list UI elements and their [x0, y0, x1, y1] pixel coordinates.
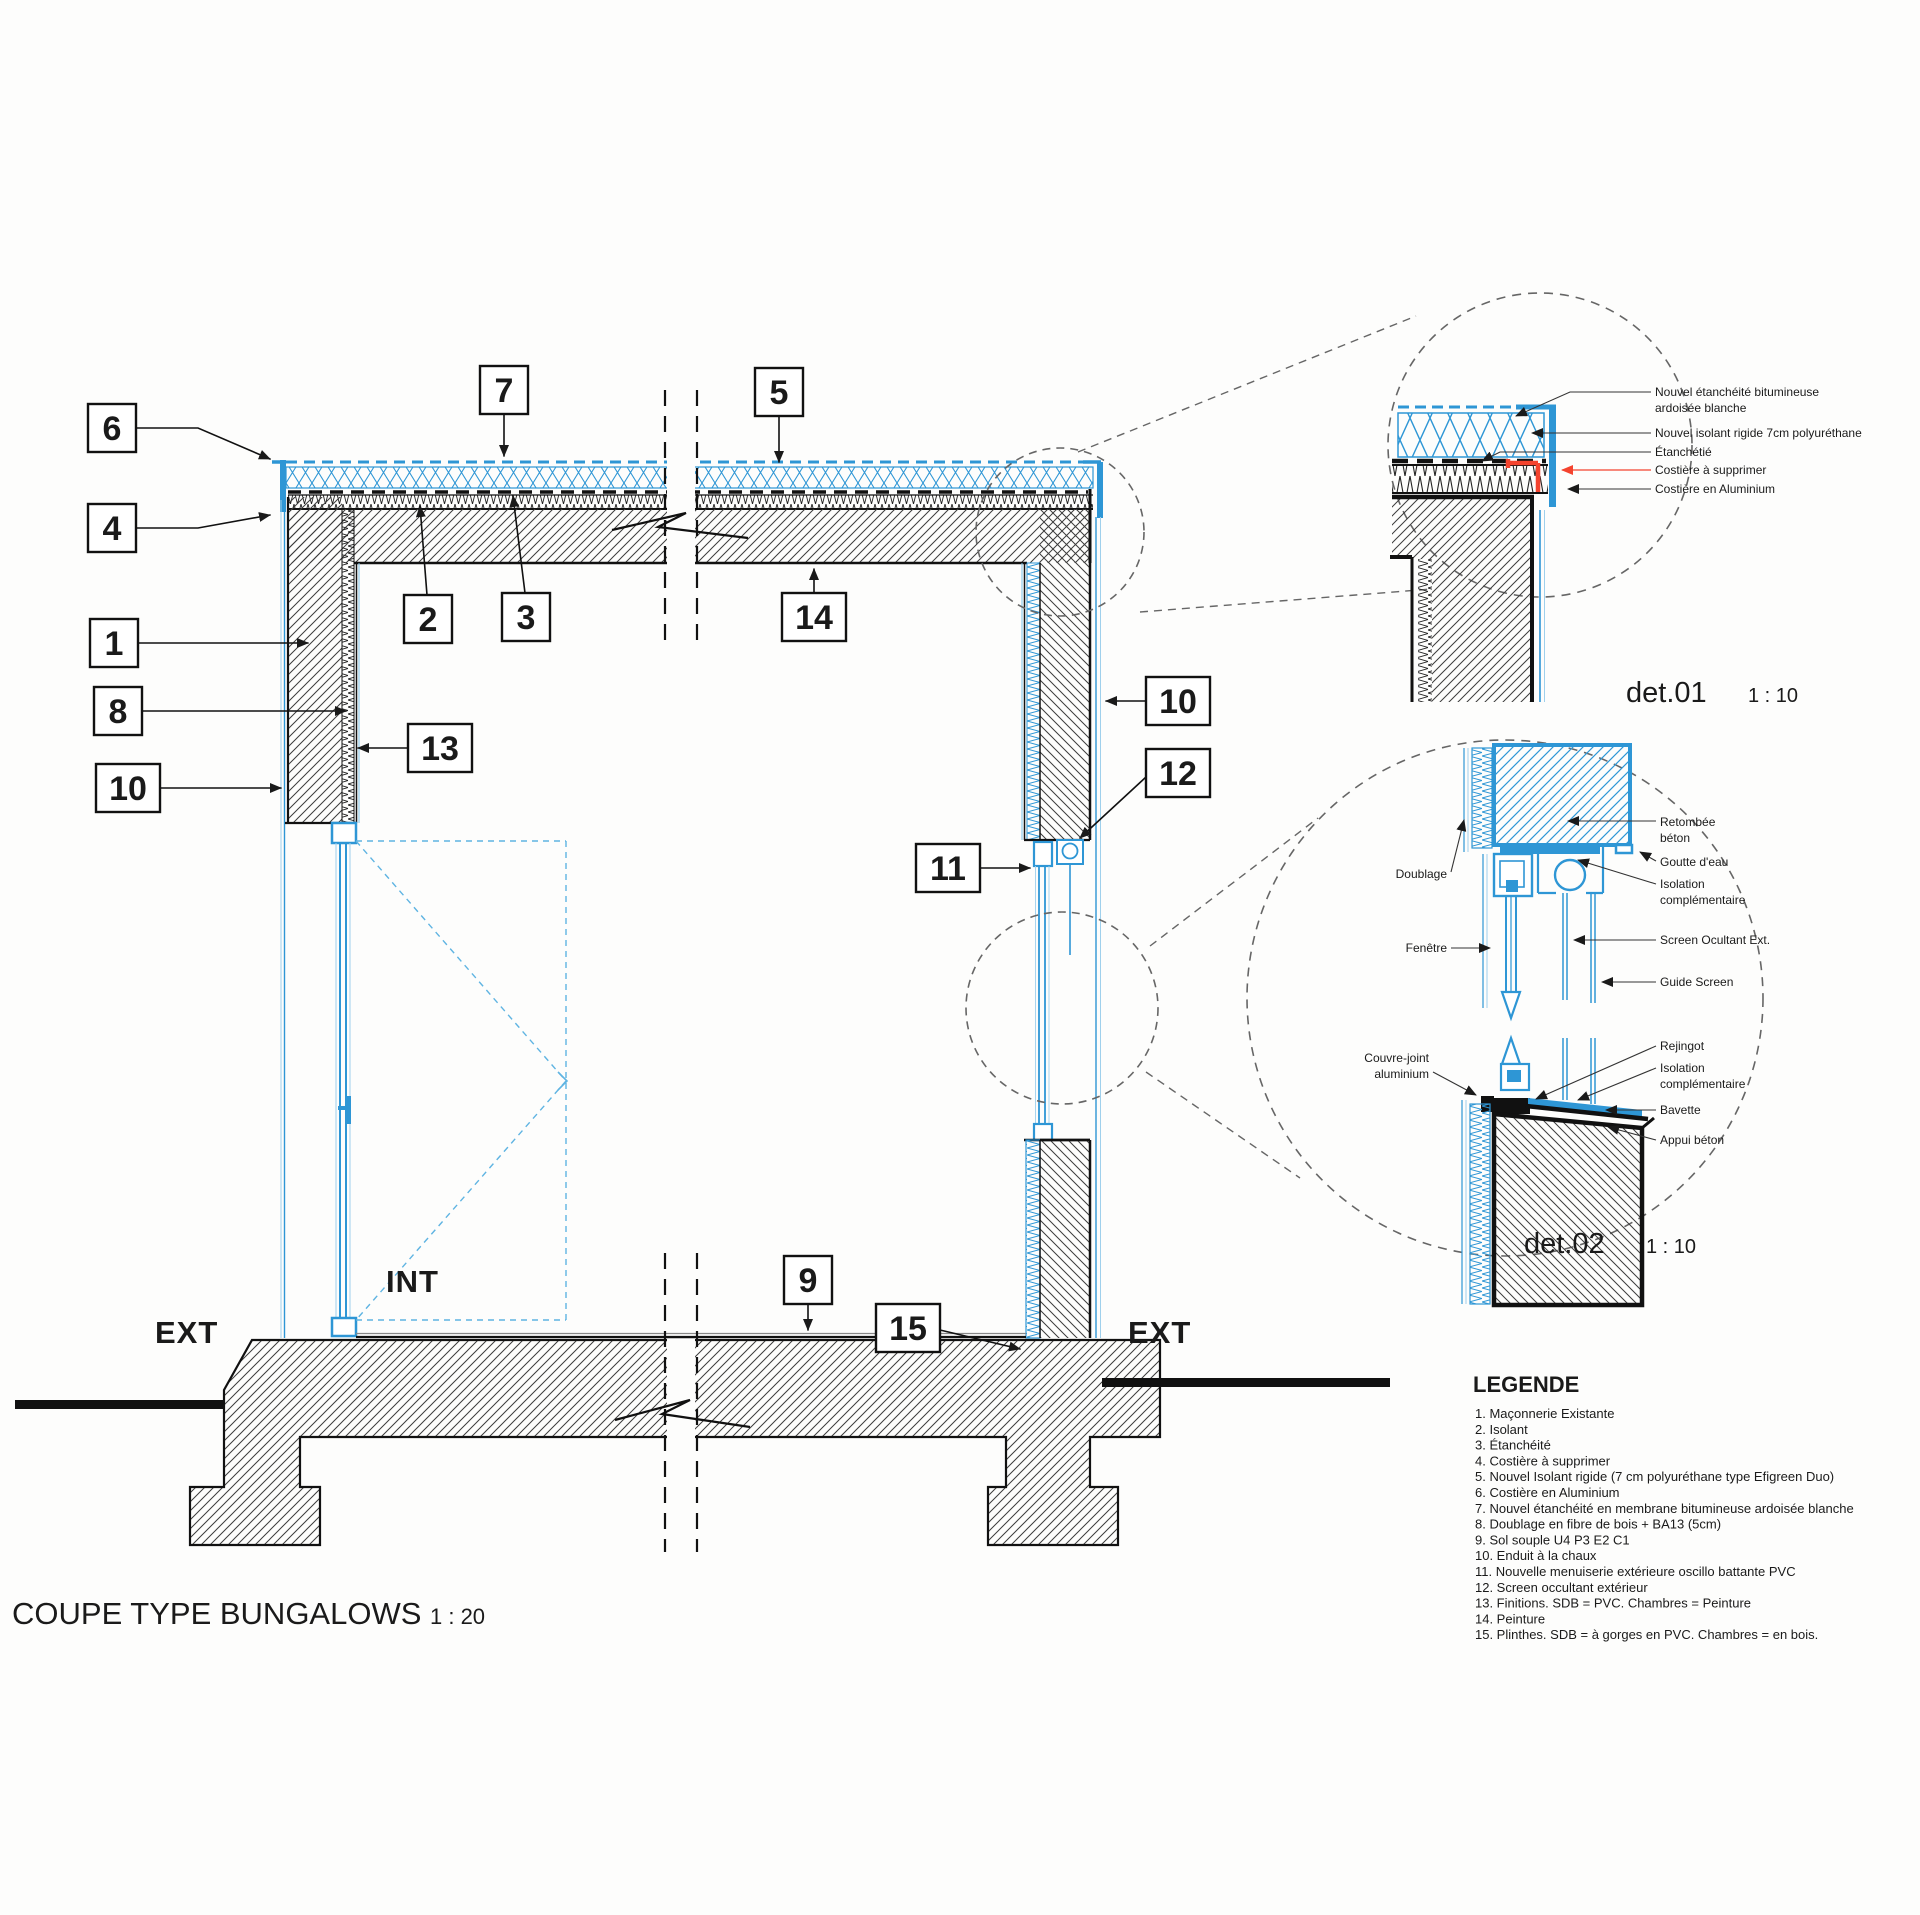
- det01-label-etancheite: Étanchétié: [1655, 444, 1712, 459]
- legend-item: 9. Sol souple U4 P3 E2 C1: [1475, 1532, 1630, 1547]
- right-wall-doublage: [1027, 563, 1040, 840]
- pier-under-window: [1026, 1140, 1090, 1338]
- legend-item: 7. Nouvel étanchéité en membrane bitumin…: [1475, 1501, 1854, 1516]
- det02-drawing: [1462, 745, 1654, 1305]
- floor-slab: [15, 1334, 1390, 1546]
- svg-text:13: 13: [421, 730, 459, 768]
- callout-12: 12: [1080, 749, 1210, 838]
- det02-screen-roller: [1555, 860, 1585, 890]
- legend-item: 14. Peinture: [1475, 1611, 1545, 1626]
- legend-item: 4. Costière à supprimer: [1475, 1453, 1611, 1468]
- det02-goutte-eau: [1616, 845, 1632, 853]
- ext-left-label: EXT: [155, 1315, 218, 1350]
- door-swing-lines: [356, 841, 566, 1320]
- legend-item: 15. Plinthes. SDB = à gorges en PVC. Cha…: [1475, 1627, 1818, 1642]
- det02-scale: 1 : 10: [1646, 1236, 1696, 1258]
- det01-label-costiere-alu: Costière en Aluminium: [1655, 482, 1775, 496]
- callout-6: 6: [88, 404, 270, 459]
- pier-masonry: [1040, 1140, 1090, 1338]
- det02-label-bavette: Bavette: [1660, 1103, 1701, 1117]
- det02-label-isolation-1a: Isolation: [1660, 877, 1705, 891]
- right-wall-masonry: [1040, 509, 1090, 840]
- det02-title: det.02: [1524, 1228, 1605, 1260]
- det02-doublage: [1472, 748, 1492, 848]
- window-assembly: [1024, 840, 1090, 1140]
- svg-text:8: 8: [109, 693, 128, 731]
- left-wall-masonry: [288, 497, 342, 823]
- legend-item: 1. Maçonnerie Existante: [1475, 1406, 1614, 1421]
- left-wall-doublage: [342, 509, 354, 823]
- ground-line-left: [15, 1400, 224, 1409]
- callout-4: 4: [88, 504, 270, 552]
- det02-isolation-complementaire-haut: [1500, 845, 1600, 854]
- det01-label-membrane-2: ardoisée blanche: [1655, 401, 1747, 415]
- door-head-frame: [332, 823, 356, 843]
- det02-rejingot: [1494, 1098, 1530, 1114]
- svg-text:5: 5: [770, 374, 789, 412]
- svg-text:12: 12: [1159, 755, 1197, 793]
- svg-text:2: 2: [419, 601, 438, 639]
- det02-label-doublage: Doublage: [1396, 867, 1448, 881]
- legend: LEGENDE 1. Maçonnerie Existante 2. Isola…: [1473, 1372, 1854, 1642]
- svg-text:11: 11: [930, 850, 966, 888]
- svg-text:4: 4: [103, 510, 122, 548]
- det02-source-circle: [966, 912, 1158, 1104]
- det01-scale: 1 : 10: [1748, 685, 1798, 707]
- svg-text:6: 6: [103, 410, 122, 448]
- det01-title: det.01: [1626, 677, 1707, 709]
- det02-label-retombee-1: Retombée: [1660, 815, 1716, 829]
- det02-retombee-beton: [1494, 745, 1630, 845]
- legend-item: 11. Nouvelle menuiserie extérieure oscil…: [1475, 1564, 1796, 1579]
- legend-item: 12. Screen occultant extérieur: [1475, 1580, 1648, 1595]
- callout-9: 9: [784, 1256, 832, 1330]
- callout-10-right: 10: [1106, 677, 1210, 725]
- legend-item: 13. Finitions. SDB = PVC. Chambres = Pei…: [1475, 1596, 1751, 1611]
- det01-label-membrane-1: Nouvel étanchéité bitumineuse: [1655, 385, 1819, 399]
- callout-7: 7: [480, 366, 528, 456]
- window-sill-frame: [1034, 1124, 1052, 1140]
- det02-label-fenetre: Fenêtre: [1406, 941, 1448, 955]
- callout-5: 5: [755, 368, 803, 462]
- svg-text:9: 9: [799, 1262, 818, 1300]
- det01-drawing: [1390, 407, 1556, 702]
- det02: Doublage Fenêtre Couvre-joint aluminium …: [1247, 740, 1770, 1305]
- legend-title: LEGENDE: [1473, 1372, 1579, 1397]
- ext-right-label: EXT: [1128, 1315, 1191, 1350]
- det02-label-retombee-2: béton: [1660, 831, 1690, 845]
- callout-13: 13: [358, 724, 472, 772]
- svg-text:10: 10: [109, 770, 147, 808]
- svg-text:7: 7: [495, 372, 514, 410]
- callout-14: 14: [782, 569, 846, 641]
- pier-doublage-plinth: [1026, 1140, 1040, 1338]
- det02-label-couvre-joint-2: aluminium: [1374, 1067, 1429, 1081]
- svg-text:3: 3: [517, 599, 536, 637]
- legend-item: 5. Nouvel Isolant rigide (7 cm polyuréth…: [1475, 1469, 1834, 1484]
- det02-label-isolation-1b: complémentaire: [1660, 893, 1746, 907]
- main-scale: 1 : 20: [430, 1604, 485, 1629]
- det02-label-goutte-eau: Goutte d'eau: [1660, 855, 1728, 869]
- det01-label-costiere-supprimer: Costière à supprimer: [1655, 463, 1766, 477]
- window-head-frame: [1034, 842, 1052, 866]
- left-wall: [281, 497, 359, 1338]
- det02-appui-beton: [1494, 1114, 1642, 1305]
- legend-item: 8. Doublage en fibre de bois + BA13 (5cm…: [1475, 1517, 1721, 1532]
- det01-label-isolant: Nouvel isolant rigide 7cm polyuréthane: [1655, 426, 1862, 440]
- main-title: COUPE TYPE BUNGALOWS: [12, 1596, 421, 1631]
- det02-label-isolation-2a: Isolation: [1660, 1061, 1705, 1075]
- svg-text:14: 14: [795, 599, 833, 637]
- det02-label-rejingot: Rejingot: [1660, 1039, 1705, 1053]
- callout-11: 11: [916, 844, 1030, 892]
- det01: Nouvel étanchéité bitumineuse ardoisée b…: [1388, 293, 1862, 709]
- door-sill-frame: [332, 1318, 356, 1336]
- det02-label-appui: Appui béton: [1660, 1133, 1724, 1147]
- svg-text:15: 15: [889, 1310, 927, 1348]
- detail-reference-lines: [1078, 316, 1432, 1178]
- det02-label-screen: Screen Ocultant Ext.: [1660, 933, 1770, 947]
- legend-item: 6. Costière en Aluminium: [1475, 1485, 1620, 1500]
- ground-line-right: [1102, 1378, 1390, 1387]
- svg-text:1: 1: [105, 625, 124, 663]
- legend-item: 2. Isolant: [1475, 1422, 1528, 1437]
- det02-label-couvre-joint-1: Couvre-joint: [1364, 1051, 1429, 1065]
- det02-label-guide-screen: Guide Screen: [1660, 975, 1733, 989]
- svg-text:10: 10: [1159, 683, 1197, 721]
- int-label: INT: [386, 1264, 439, 1299]
- callout-1: 1: [90, 619, 308, 667]
- main-section: EXT INT EXT 6 4 1 8: [12, 316, 1432, 1631]
- exterior-door: [332, 823, 567, 1336]
- det02-label-isolation-2b: complémentaire: [1660, 1077, 1746, 1091]
- legend-item: 10. Enduit à la chaux: [1475, 1548, 1597, 1563]
- callout-10-left: 10: [96, 764, 281, 812]
- legend-item: 3. Étanchéité: [1475, 1438, 1551, 1453]
- architectural-section-drawing: EXT INT EXT 6 4 1 8: [0, 0, 1920, 1915]
